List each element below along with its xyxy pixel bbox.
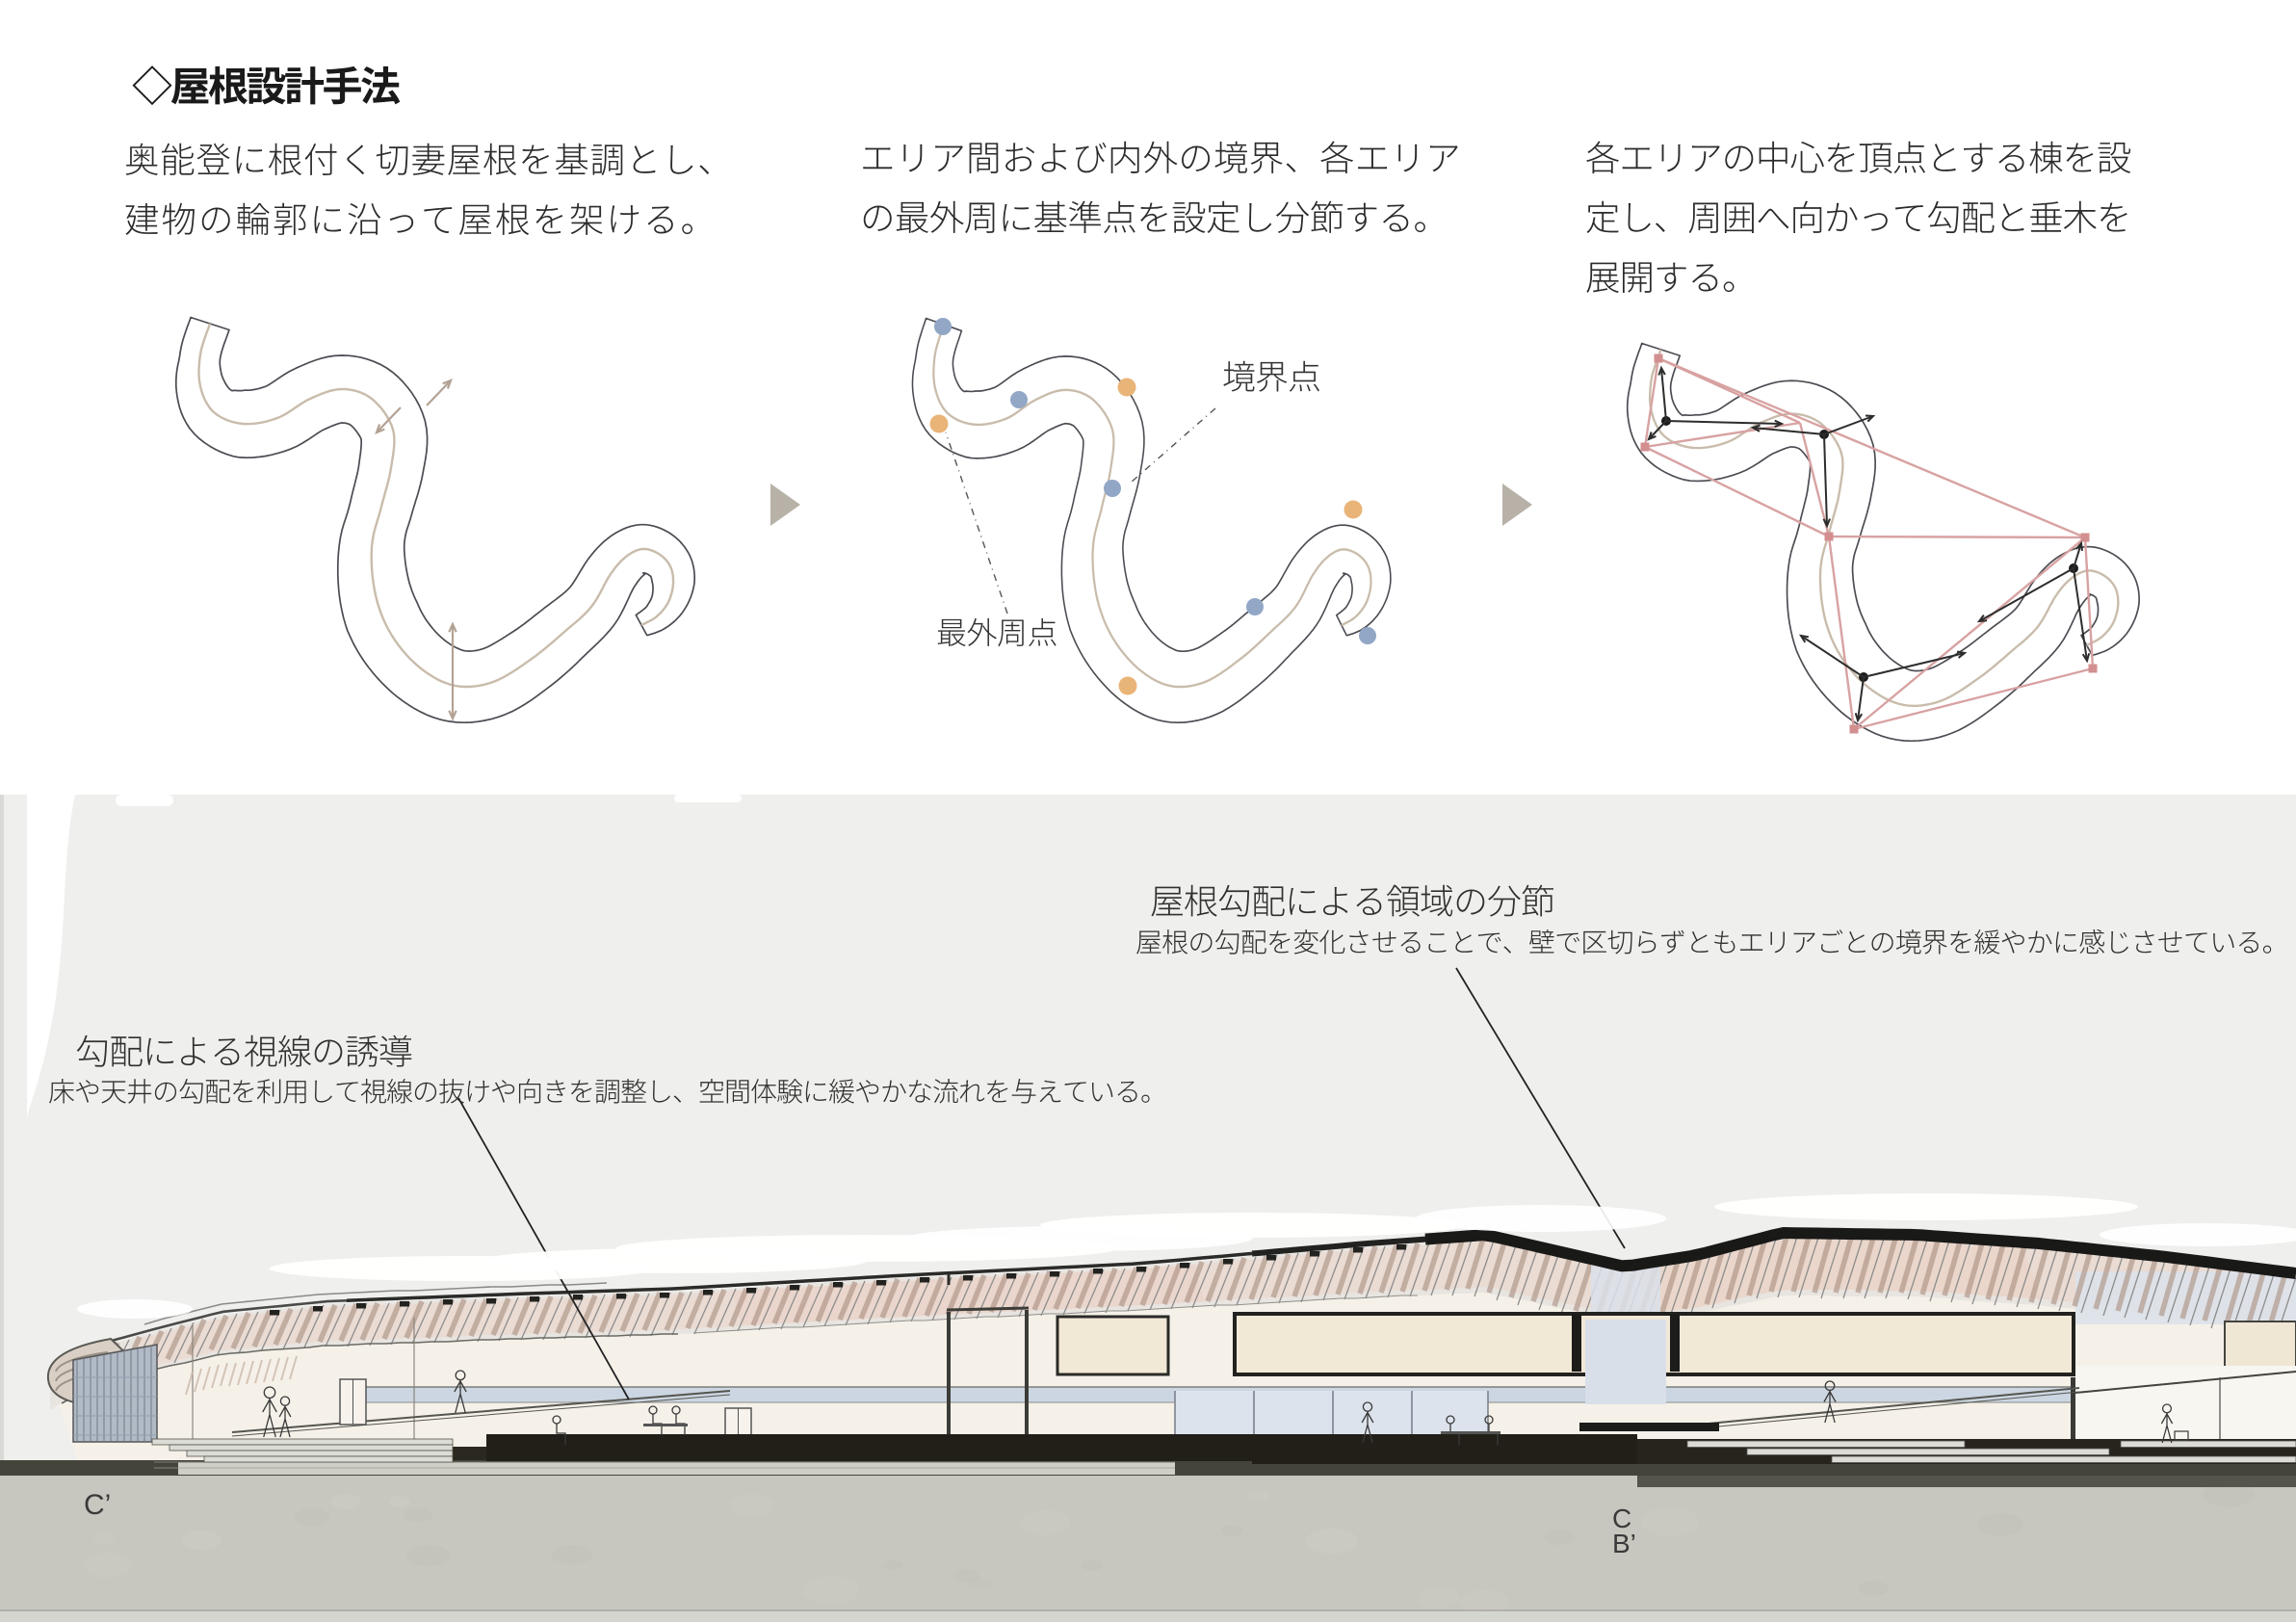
- svg-text:B’: B’: [1612, 1529, 1636, 1558]
- svg-text:C’: C’: [84, 1489, 111, 1521]
